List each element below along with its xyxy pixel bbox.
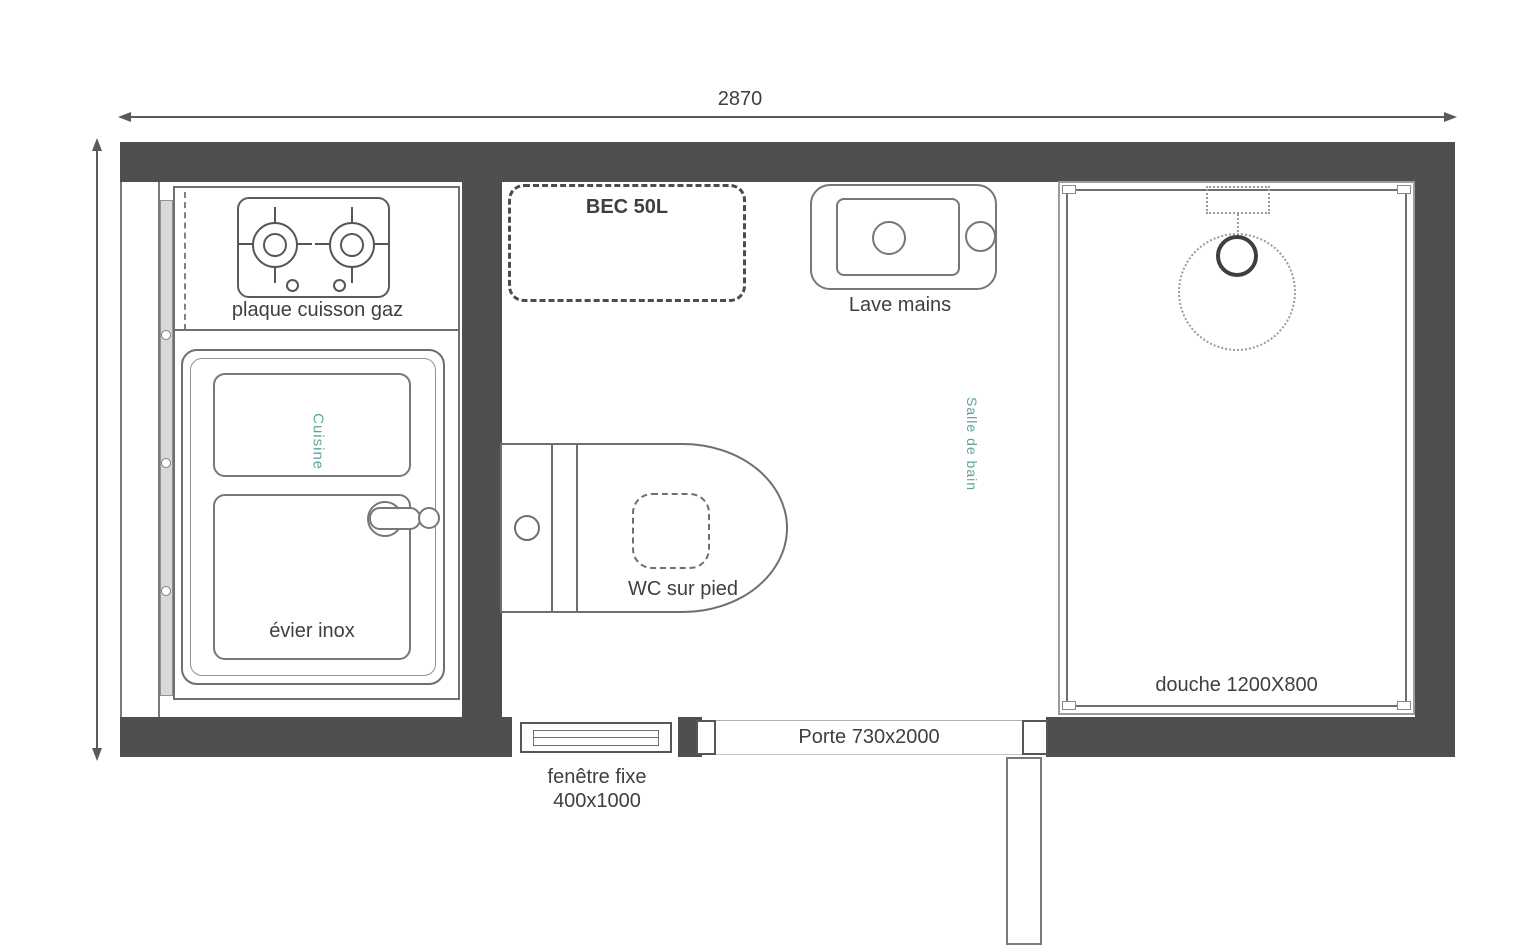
dimension-height-line (96, 142, 98, 757)
hand-basin-faucet-icon (965, 221, 996, 252)
counter-divider (173, 329, 460, 331)
rail-hinge-icon (161, 330, 171, 340)
shower-corner-tick-icon (1062, 185, 1076, 194)
door-opening-top-line (702, 720, 1046, 721)
shower-corner-tick-icon (1397, 701, 1411, 710)
toilet-flush-button-icon (514, 515, 540, 541)
shower-corner-tick-icon (1062, 701, 1076, 710)
stove-knob-icon (333, 279, 346, 292)
window-glazing (533, 730, 659, 746)
burner-left-inner-icon (263, 233, 287, 257)
toilet-seat-dashed (632, 493, 710, 569)
rail-hinge-icon (161, 586, 171, 596)
wall-right (1415, 142, 1455, 757)
door-leaf-open (1006, 757, 1042, 945)
door-jamb-right (1022, 720, 1048, 755)
dimension-arrow-down-icon (92, 748, 102, 761)
shower-corner-tick-icon (1397, 185, 1411, 194)
hand-basin-drain-icon (872, 221, 906, 255)
rail-hinge-icon (161, 458, 171, 468)
kitchen-rail (160, 200, 173, 696)
dimension-arrow-left-icon (118, 112, 131, 122)
dimension-arrow-up-icon (92, 138, 102, 151)
window-label-line1: fenêtre fixe (502, 766, 692, 789)
window-glazing-mid (534, 737, 658, 738)
water-heater-label: BEC 50L (508, 196, 746, 219)
wall-partition (462, 182, 502, 757)
stove-label: plaque cuisson gaz (175, 299, 460, 322)
wall-left-opening (120, 182, 160, 717)
door-opening-bottom-line (702, 754, 1046, 755)
burner-right-inner-icon (340, 233, 364, 257)
window-label-line2: 400x1000 (502, 790, 692, 813)
wall-bottom-right (1046, 717, 1455, 757)
toilet-label: WC sur pied (578, 578, 788, 601)
stove-knob-icon (286, 279, 299, 292)
faucet-knob-icon (418, 507, 440, 529)
faucet-lever-icon (369, 507, 421, 530)
door-label: Porte 730x2000 (716, 726, 1022, 749)
shower-head-icon (1216, 235, 1258, 277)
kitchen-room-label: Cuisine (309, 396, 326, 488)
dimension-width-line (120, 116, 1455, 118)
wall-bottom-left (120, 717, 512, 757)
shower-label: douche 1200X800 (1058, 674, 1415, 697)
dimension-width-label: 2870 (620, 88, 860, 111)
hand-basin-label: Lave mains (800, 294, 1000, 317)
dimension-arrow-right-icon (1444, 112, 1457, 122)
shower-mixer-dotted-icon (1206, 186, 1270, 214)
floor-plan: 2870 plaque cuisson gaz Cuisine évier in… (0, 0, 1529, 945)
door-jamb-left (696, 720, 716, 755)
sink-label: évier inox (213, 620, 411, 643)
bathroom-room-label: Salle de bain (964, 397, 980, 489)
wall-top (120, 142, 1455, 182)
toilet-tank-line (551, 443, 553, 613)
